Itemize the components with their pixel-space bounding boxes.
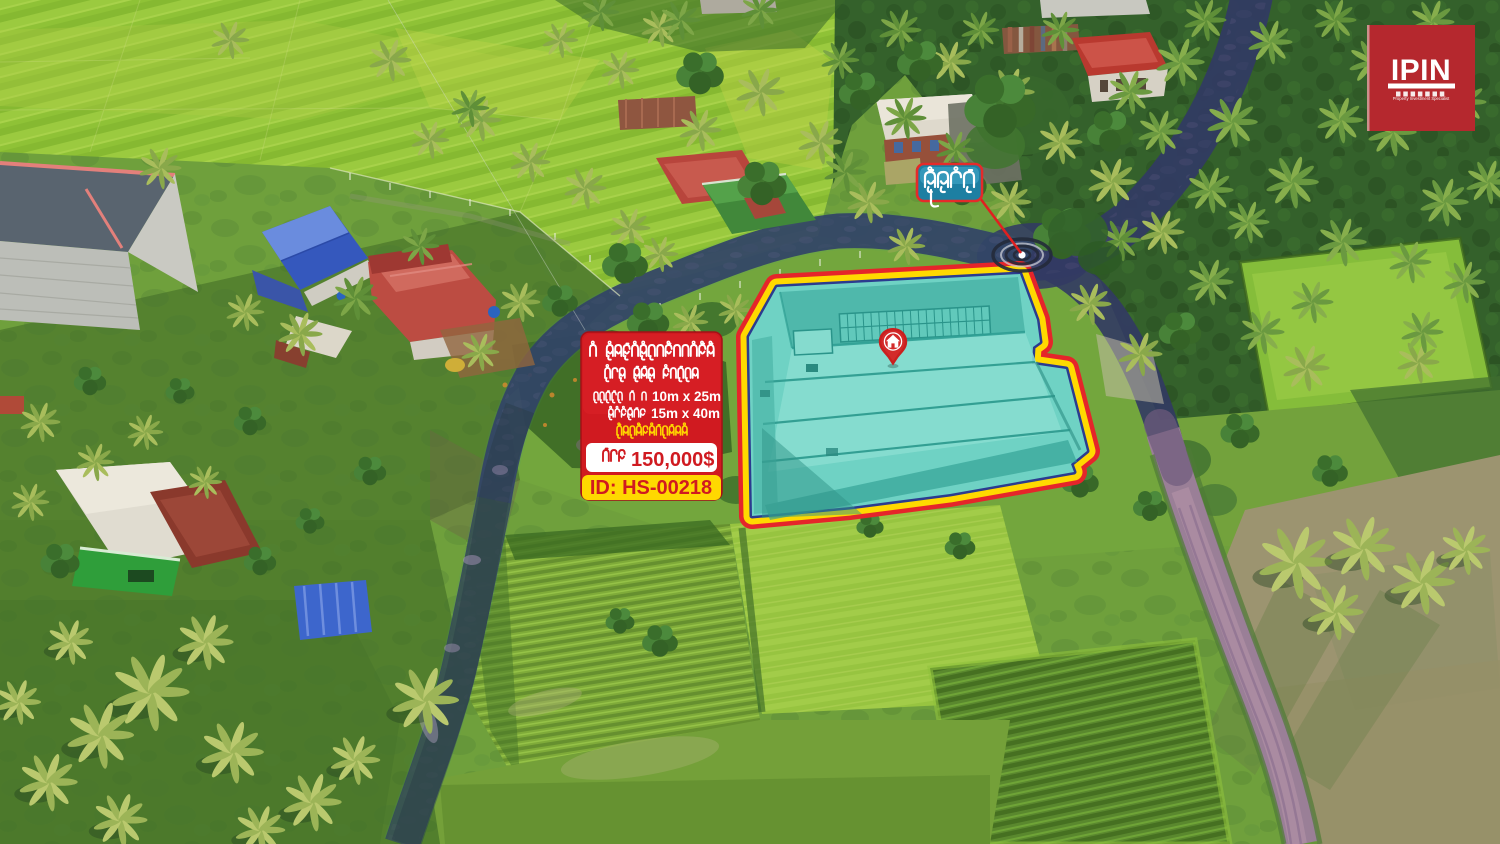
svg-text:15m x 40m: 15m x 40m (651, 406, 720, 421)
svg-text:Property Investment Specialist: Property Investment Specialist (1393, 96, 1450, 101)
svg-text:IPIN: IPIN (1391, 54, 1451, 87)
svg-text:ID: HS-00218: ID: HS-00218 (590, 477, 712, 499)
svg-text:150,000$: 150,000$ (631, 449, 714, 471)
svg-text:10m x 25m: 10m x 25m (652, 389, 721, 404)
